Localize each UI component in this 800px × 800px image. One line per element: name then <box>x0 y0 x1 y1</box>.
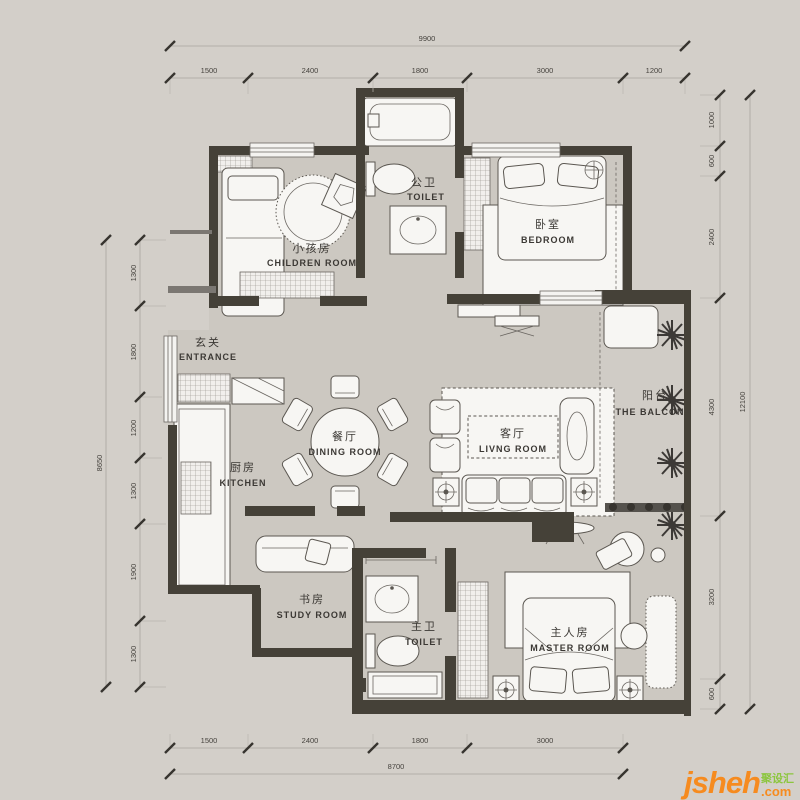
dining-room-label-en: DINING ROOM <box>309 447 382 457</box>
dim-bottom-3: 1800 <box>412 736 429 745</box>
dim-left-5: 1900 <box>129 564 138 581</box>
watermark-domain: .com <box>761 785 794 798</box>
floor-plan-page: 小孩房 CHILDREN ROOM 公卫 TOILET 卧室 BEDROOM 玄… <box>0 0 800 800</box>
watermark-brand: jsheh <box>684 767 760 798</box>
dim-right-5: 3200 <box>707 589 716 606</box>
dim-top-5: 1200 <box>646 66 663 75</box>
public-toilet-label-cn: 公卫 <box>411 177 437 189</box>
kitchen-label-en: KITCHEN <box>220 478 267 488</box>
entrance-label-en: ENTRANCE <box>179 352 237 362</box>
study-furniture <box>256 536 354 572</box>
master-room-label-en: MASTER ROOM <box>530 643 610 653</box>
living-room-label-cn: 客厅 <box>500 426 526 440</box>
dim-left-3: 1200 <box>129 420 138 437</box>
children-room-label-en: CHILDREN ROOM <box>267 258 357 268</box>
dim-bottom-2: 2400 <box>302 736 319 745</box>
children-room-label-cn: 小孩房 <box>293 242 332 255</box>
dim-bottom-1: 1500 <box>201 736 218 745</box>
study-room-label-cn: 书房 <box>299 593 325 606</box>
dim-left-6: 1300 <box>129 646 138 663</box>
dim-right-total: 12100 <box>738 392 747 413</box>
dim-top-total: 9900 <box>419 34 436 43</box>
window <box>250 143 314 157</box>
dim-left-4: 1300 <box>129 483 138 500</box>
dim-bottom-total: 8700 <box>388 762 405 771</box>
bedroom-label-en: BEDROOM <box>521 235 575 245</box>
master-toilet-label-en: TOILET <box>405 637 443 647</box>
balcony-label-en: THE BALCON <box>616 407 685 417</box>
dining-room-label-cn: 餐厅 <box>332 429 358 443</box>
dim-top-2: 2400 <box>302 66 319 75</box>
bedroom-label-cn: 卧室 <box>535 217 561 231</box>
master-room-label-cn: 主人房 <box>551 626 590 639</box>
watermark-logo: jsheh 聚设汇 .com <box>684 767 794 798</box>
entrance-label-cn: 玄关 <box>195 335 221 349</box>
dim-bottom-4: 3000 <box>537 736 554 745</box>
dim-right-6: 600 <box>707 688 716 701</box>
dim-top-1: 1500 <box>201 66 218 75</box>
dim-left-1: 1300 <box>129 265 138 282</box>
dim-top-4: 3000 <box>537 66 554 75</box>
study-room-label-en: STUDY ROOM <box>277 610 348 620</box>
window <box>472 143 560 157</box>
floor-plan-drawing: 小孩房 CHILDREN ROOM 公卫 TOILET 卧室 BEDROOM 玄… <box>0 0 800 800</box>
master-toilet-label-cn: 主卫 <box>411 620 437 633</box>
dim-top-3: 1800 <box>412 66 429 75</box>
dim-right-3: 2400 <box>707 229 716 246</box>
dim-right-2: 600 <box>707 155 716 168</box>
window <box>164 336 177 422</box>
dim-left-total: 8650 <box>95 455 104 472</box>
living-room-label-en: LIVNG ROOM <box>479 444 547 454</box>
kitchen-furniture <box>174 404 230 590</box>
dim-right-1: 1000 <box>707 112 716 129</box>
balcony-label-cn: 阳台 <box>642 388 668 402</box>
kitchen-label-cn: 厨房 <box>230 461 256 474</box>
dim-left-2: 1800 <box>129 344 138 361</box>
dim-right-4: 4300 <box>707 399 716 416</box>
public-toilet-label-en: TOILET <box>407 192 445 202</box>
window <box>540 291 602 305</box>
